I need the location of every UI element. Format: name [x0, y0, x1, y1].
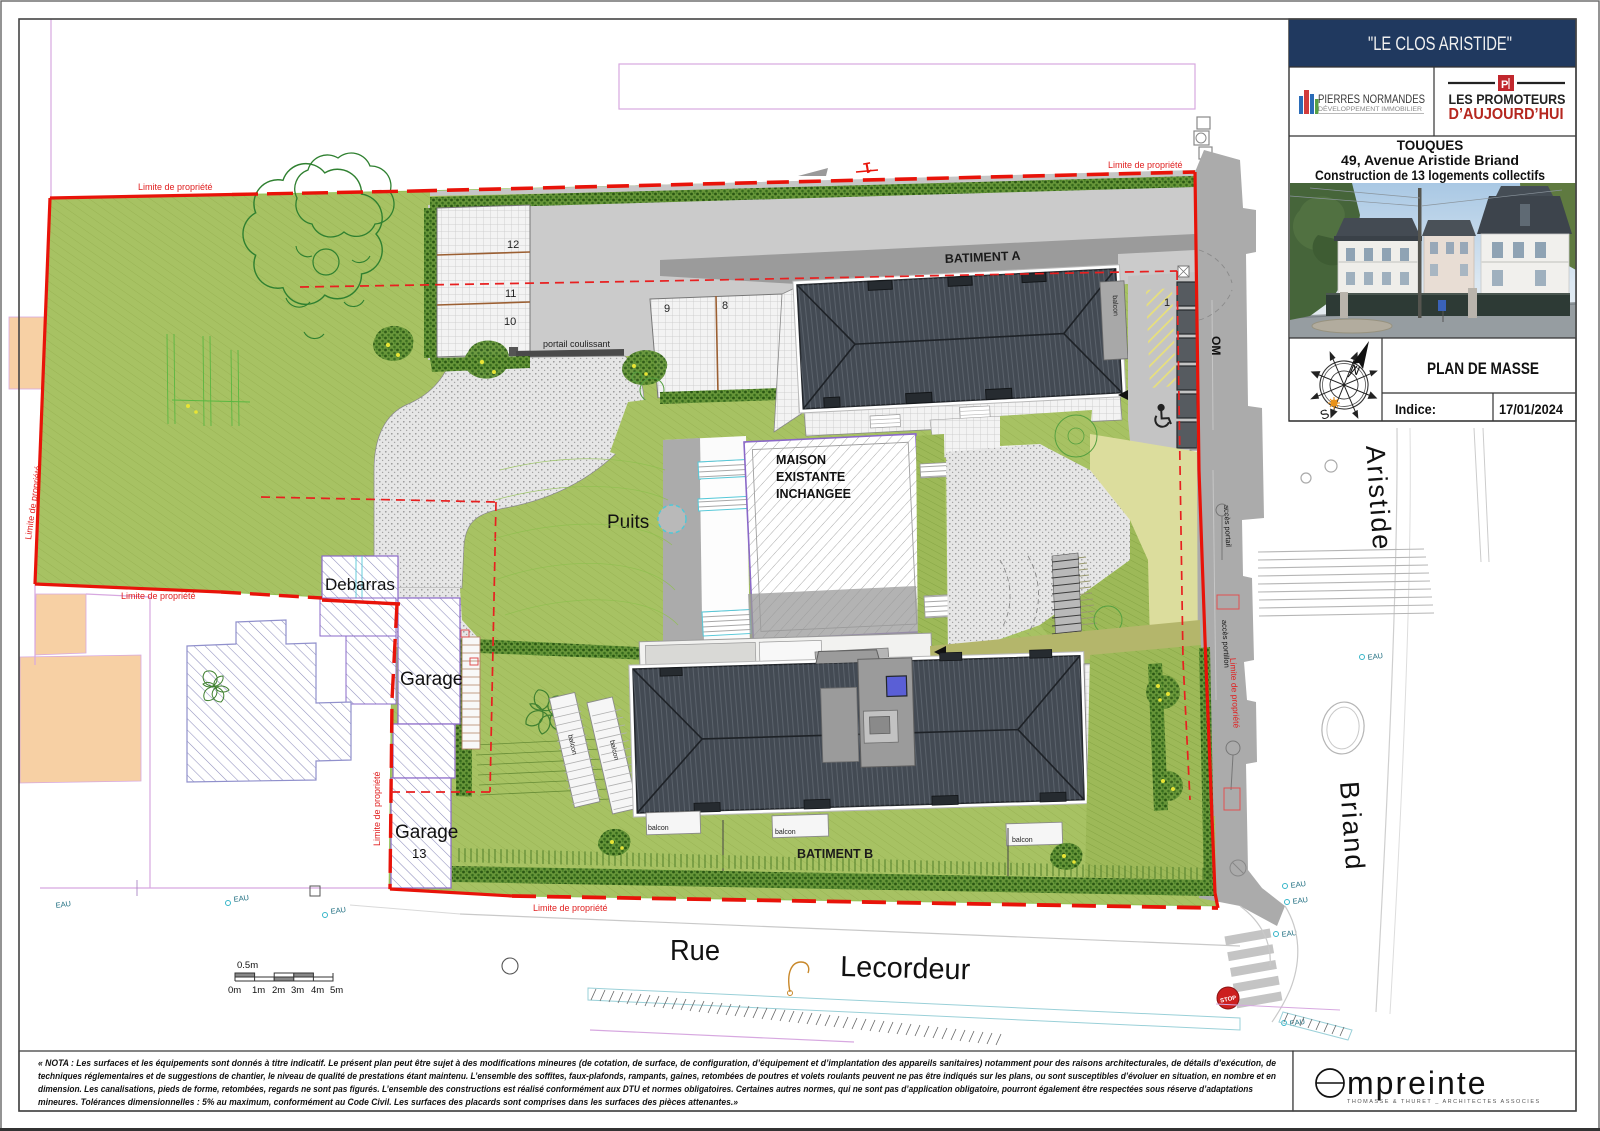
- svg-text:11: 11: [505, 288, 516, 300]
- svg-text:Puits: Puits: [607, 512, 649, 533]
- svg-text:Limite de propriété: Limite de propriété: [1108, 160, 1183, 170]
- svg-text:Garage: Garage: [400, 669, 463, 690]
- svg-text:MAISON: MAISON: [776, 453, 826, 467]
- svg-text:5m: 5m: [330, 985, 343, 996]
- svg-text:« NOTA : Les surfaces et les é: « NOTA : Les surfaces et les équipements…: [38, 1058, 1276, 1068]
- svg-text:Indice:: Indice:: [1395, 402, 1436, 417]
- svg-text:"LE CLOS ARISTIDE": "LE CLOS ARISTIDE": [1368, 34, 1512, 55]
- svg-text:balcon: balcon: [775, 829, 796, 836]
- svg-text:DÉVELOPPEMENT IMMOBILIER: DÉVELOPPEMENT IMMOBILIER: [1318, 104, 1422, 113]
- svg-text:P: P: [1501, 79, 1508, 91]
- svg-text:mpreinte: mpreinte: [1347, 1065, 1488, 1101]
- svg-text:Debarras: Debarras: [325, 575, 395, 594]
- svg-text:Briand: Briand: [1334, 780, 1370, 872]
- svg-text:3m: 3m: [291, 985, 304, 996]
- svg-text:8: 8: [722, 300, 728, 312]
- svg-text:balcon: balcon: [1111, 295, 1119, 316]
- svg-text:EXISTANTE: EXISTANTE: [776, 470, 845, 484]
- svg-text:0m: 0m: [228, 985, 241, 996]
- svg-text:Rue: Rue: [670, 935, 720, 967]
- svg-text:Lecordeur: Lecordeur: [840, 951, 971, 986]
- svg-text:0.5m: 0.5m: [237, 960, 258, 971]
- svg-text:17/01/2024: 17/01/2024: [1499, 402, 1563, 417]
- svg-text:Limite de propriété: Limite de propriété: [138, 182, 213, 192]
- svg-text:balcon: balcon: [648, 825, 669, 832]
- svg-text:LES PROMOTEURS: LES PROMOTEURS: [1449, 91, 1566, 107]
- svg-text:portail coulissant: portail coulissant: [543, 339, 611, 349]
- svg-text:TOUQUES: TOUQUES: [1397, 138, 1464, 153]
- svg-text:INCHANGEE: INCHANGEE: [776, 487, 851, 501]
- svg-text:Limite de propriété: Limite de propriété: [121, 591, 196, 601]
- svg-text:1m: 1m: [252, 985, 265, 996]
- svg-text:mineures. Tolérances dimensio: mineures. Tolérances dimensionnelles : 5…: [38, 1097, 738, 1107]
- svg-text:PLAN DE MASSE: PLAN DE MASSE: [1427, 360, 1539, 378]
- svg-text:Limite de propriété: Limite de propriété: [533, 903, 608, 913]
- svg-text:THOMASSE & THURET _ ARCHITECTE: THOMASSE & THURET _ ARCHITECTES ASSOCIES: [1347, 1099, 1541, 1105]
- svg-text:2m: 2m: [272, 985, 285, 996]
- svg-text:D’AUJOURD’HUI: D’AUJOURD’HUI: [1449, 106, 1564, 123]
- svg-text:Limite de propriété: Limite de propriété: [372, 771, 382, 846]
- svg-text:1: 1: [1164, 297, 1170, 309]
- svg-text:9: 9: [664, 303, 670, 315]
- svg-text:Construction de 13 logements c: Construction de 13 logements collectifs: [1315, 168, 1545, 183]
- svg-text:PIERRES NORMANDES: PIERRES NORMANDES: [1318, 94, 1425, 106]
- svg-text:techniques réglementaires et d: techniques réglementaires et de suggesti…: [38, 1071, 1276, 1081]
- svg-text:balcon: balcon: [1012, 837, 1033, 844]
- svg-text:49, Avenue Aristide Briand: 49, Avenue Aristide Briand: [1341, 153, 1519, 168]
- svg-text:13: 13: [412, 846, 426, 861]
- svg-text:4m: 4m: [311, 985, 324, 996]
- svg-text:Garage: Garage: [395, 822, 458, 843]
- svg-text:12: 12: [507, 239, 519, 251]
- svg-text:dimension. Les canalisations,: dimension. Les canalisations, pieds de f…: [38, 1084, 1253, 1094]
- svg-text:OM: OM: [1209, 336, 1223, 355]
- svg-text:10: 10: [504, 316, 516, 328]
